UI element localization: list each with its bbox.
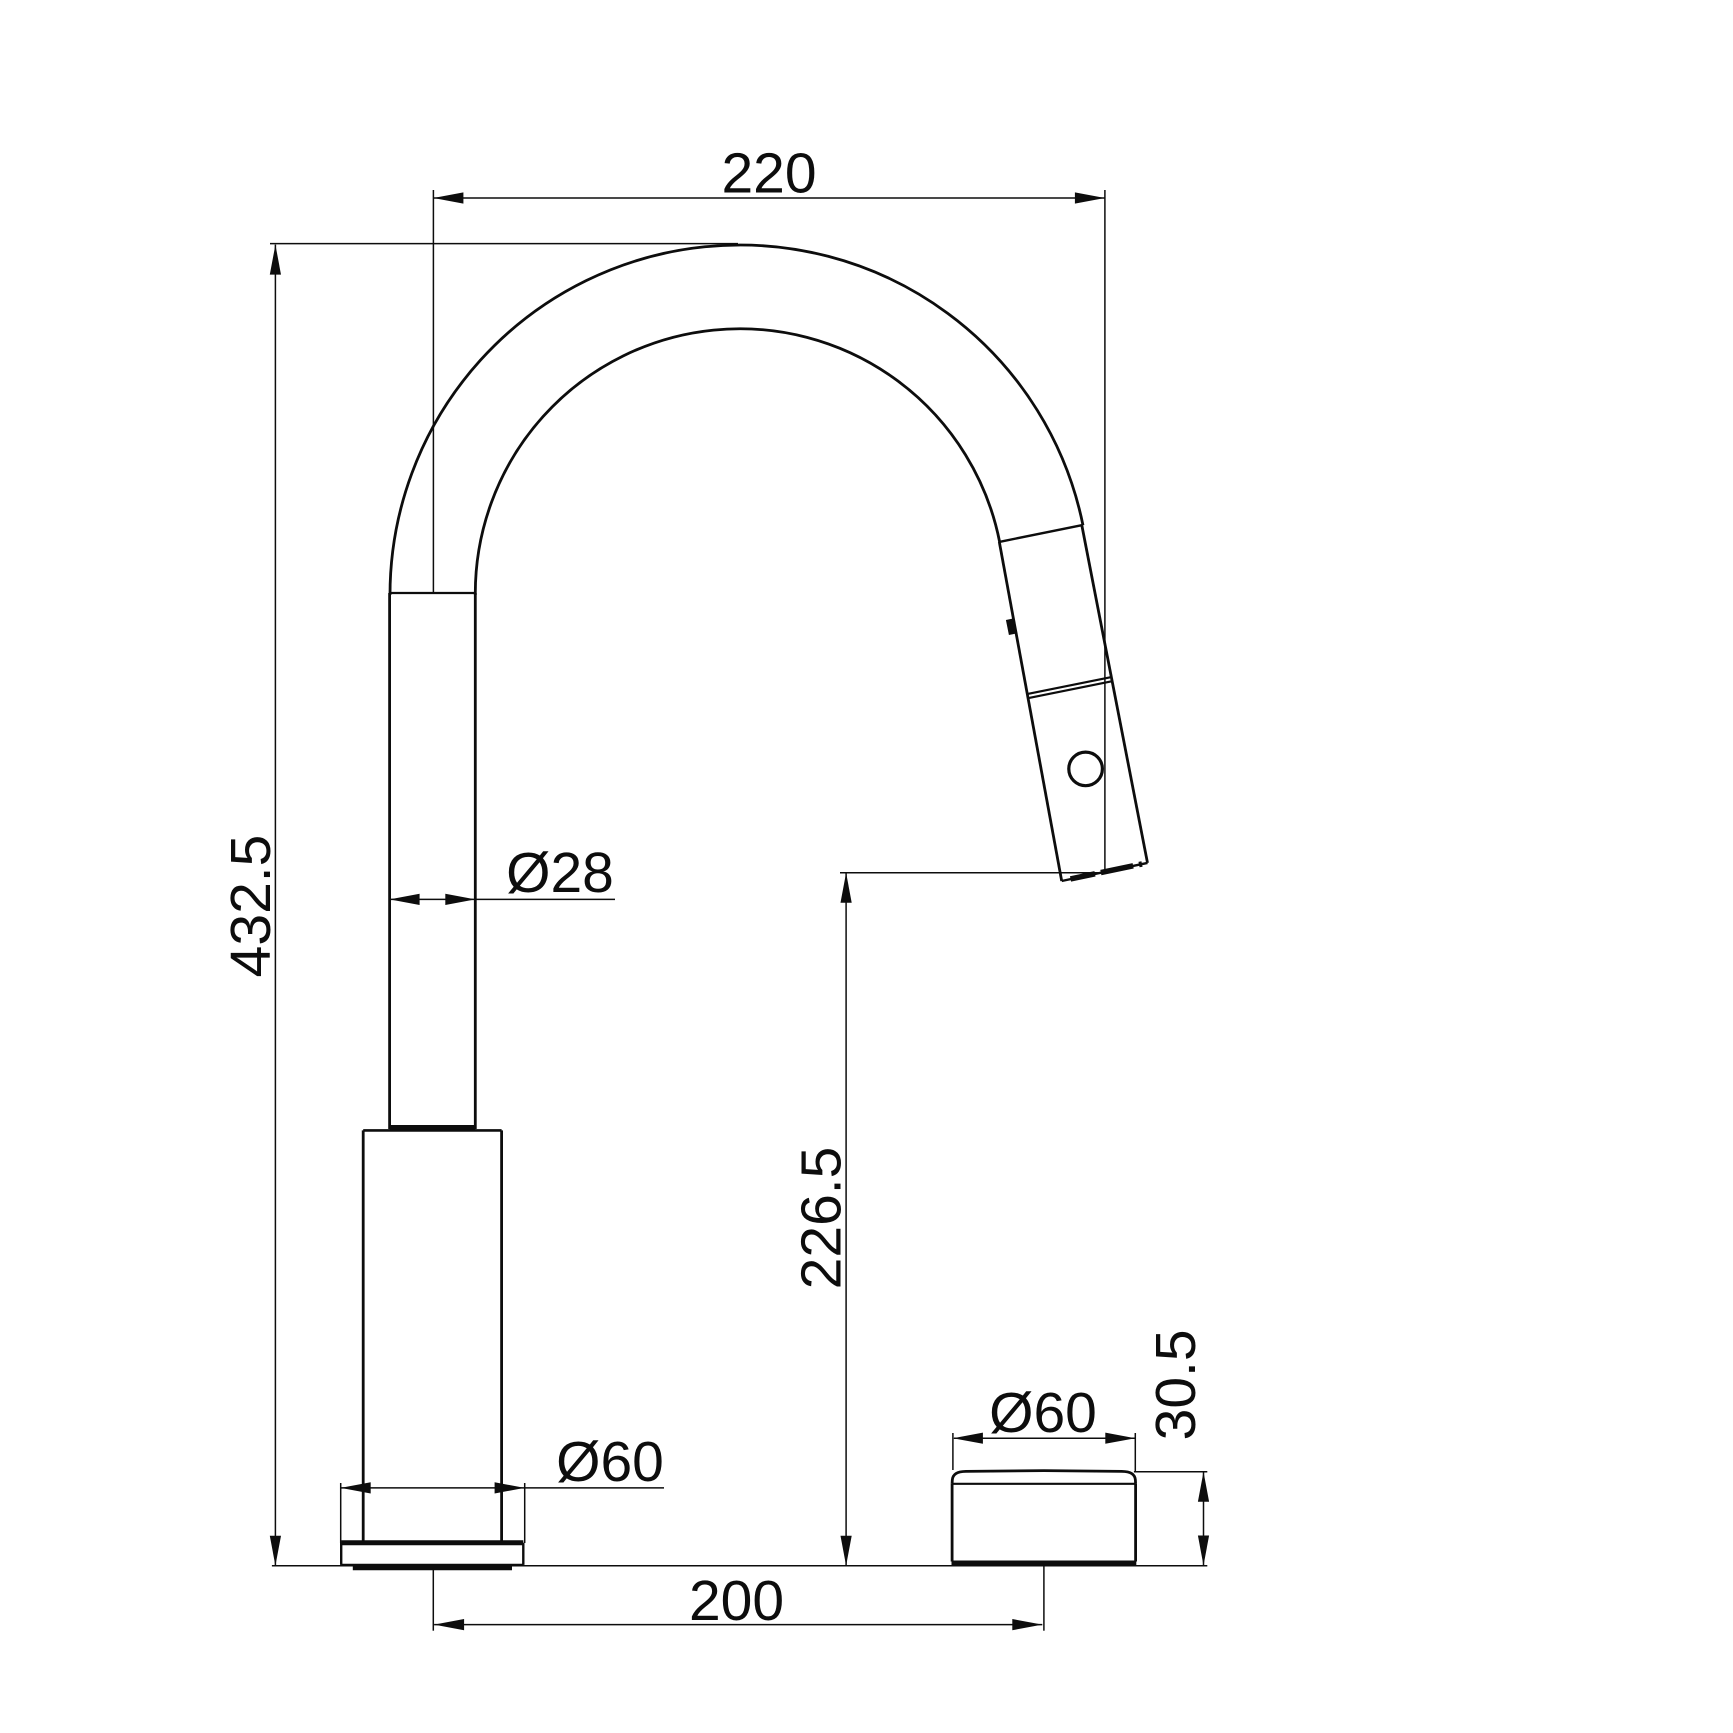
svg-text:Ø60: Ø60 [989, 1381, 1097, 1445]
svg-text:30.5: 30.5 [1144, 1329, 1208, 1440]
svg-text:226.5: 226.5 [789, 1147, 853, 1290]
svg-text:432.5: 432.5 [219, 835, 283, 978]
svg-text:Ø28: Ø28 [506, 841, 614, 905]
svg-text:200: 200 [689, 1569, 784, 1633]
svg-text:Ø60: Ø60 [556, 1430, 664, 1494]
svg-text:220: 220 [721, 142, 816, 206]
